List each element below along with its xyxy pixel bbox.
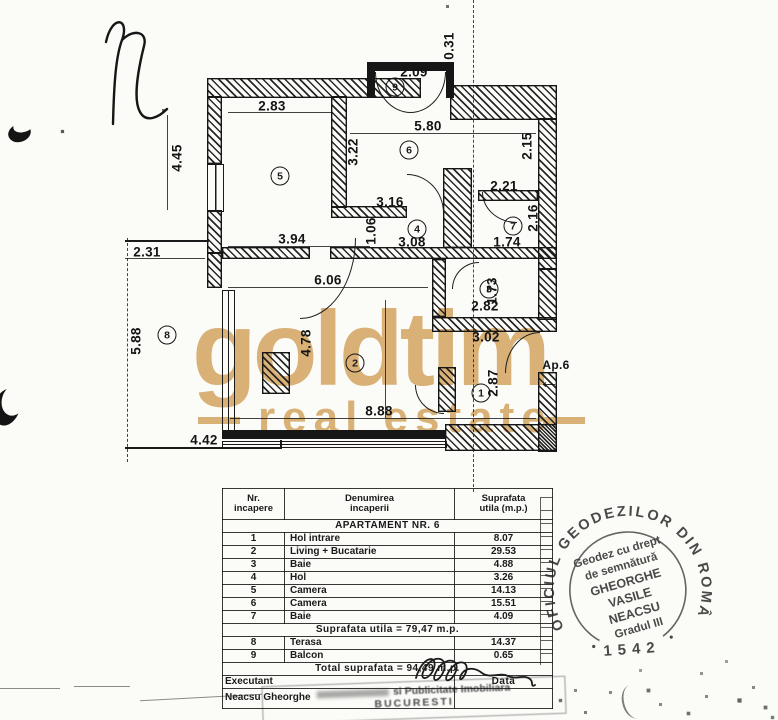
scan-artifact-line [74, 686, 130, 687]
dimension-line [350, 133, 536, 134]
wall-segment [330, 247, 557, 259]
wall-segment [207, 252, 222, 288]
dimension-label: 0.31 [442, 32, 457, 59]
dimension-label: 2.09 [400, 65, 427, 80]
table-row: 3Baie4.88 [223, 559, 553, 572]
table-row: 1Hol intrare8.07 [223, 533, 553, 546]
window [207, 164, 224, 212]
room-number-6: 6 [400, 141, 419, 160]
room-number-9: 9 [386, 78, 405, 97]
handwritten-signature [408, 644, 548, 694]
dimension-label: 2.16 [526, 204, 541, 231]
room-number-8: 8 [158, 326, 177, 345]
table-header-name: Denumirea incaperii [285, 489, 455, 520]
dimension-label: 2.83 [258, 99, 285, 114]
wall-segment [443, 168, 472, 248]
dimension-label: 2.15 [520, 132, 535, 159]
wall-segment [445, 424, 557, 451]
dimension-label: 3.94 [278, 232, 305, 247]
dimension-label: 5.88 [129, 327, 144, 354]
wall-segment [450, 85, 557, 120]
ink-blob-highlight [0, 381, 30, 419]
room-number-7: 7 [504, 217, 523, 236]
door-arc [452, 262, 479, 289]
door-arc [407, 174, 444, 213]
room-number-5: 5 [271, 167, 290, 186]
table-row: 5Camera14.13 [223, 585, 553, 598]
dimension-label: 1.74 [493, 235, 520, 250]
pillar [262, 352, 290, 394]
dimension-label: 8.88 [365, 404, 392, 419]
scanned-floor-plan-page: goldtim real estate [0, 0, 778, 720]
room-number-1: 1 [472, 384, 491, 403]
table-header-nr: Nr. incapere [223, 489, 285, 520]
table-row: 4Hol3.26 [223, 572, 553, 585]
dimension-label: 4.78 [299, 329, 314, 356]
wall-segment [538, 268, 557, 320]
stamp-number: 1542 [603, 639, 661, 660]
room-number-2: 2 [346, 354, 365, 373]
dimension-label: 6.06 [314, 273, 341, 288]
dimension-label: 2.82 [471, 299, 498, 314]
wall-segment [222, 430, 445, 439]
table-section-title: APARTAMENT NR. 6 [223, 520, 553, 533]
dimension-label: 2.21 [490, 179, 517, 194]
dimension-line [385, 300, 386, 418]
scan-speckles [0, 0, 1, 1]
dimension-label: 3.02 [472, 330, 499, 345]
terrace-edge [125, 240, 209, 242]
dimension-label: 5.80 [414, 119, 441, 134]
wall-segment [222, 247, 310, 259]
dimension-label: 1.06 [364, 217, 379, 244]
wall-segment [432, 259, 446, 317]
table-subtotal: Suprafata utila = 79,47 m.p. [223, 624, 553, 637]
room-number-3: 3 [480, 280, 499, 299]
table-row: 7Baie4.09 [223, 611, 553, 624]
dimension-label: 3.22 [346, 138, 361, 165]
terrace-edge [280, 440, 282, 449]
table-row: 6Camera15.51 [223, 598, 553, 611]
dimension-label: 3.16 [376, 195, 403, 210]
entrance-arrow-icon: ← [538, 370, 559, 394]
dimension-label: 2.31 [133, 245, 160, 260]
pen-squiggle-mark [78, 12, 178, 152]
table-row: 2Living + Bucatarie29.53 [223, 546, 553, 559]
scan-artifact-line [0, 688, 60, 689]
wall-segment [207, 210, 222, 254]
room-number-4: 4 [408, 220, 427, 239]
window [222, 290, 235, 432]
wall-segment [207, 96, 222, 164]
surveyor-round-stamp: OFICIUL GEODEZILOR DIN ROMÂNIA Geodez cu… [521, 485, 734, 698]
dimension-label: 4.42 [190, 433, 217, 448]
